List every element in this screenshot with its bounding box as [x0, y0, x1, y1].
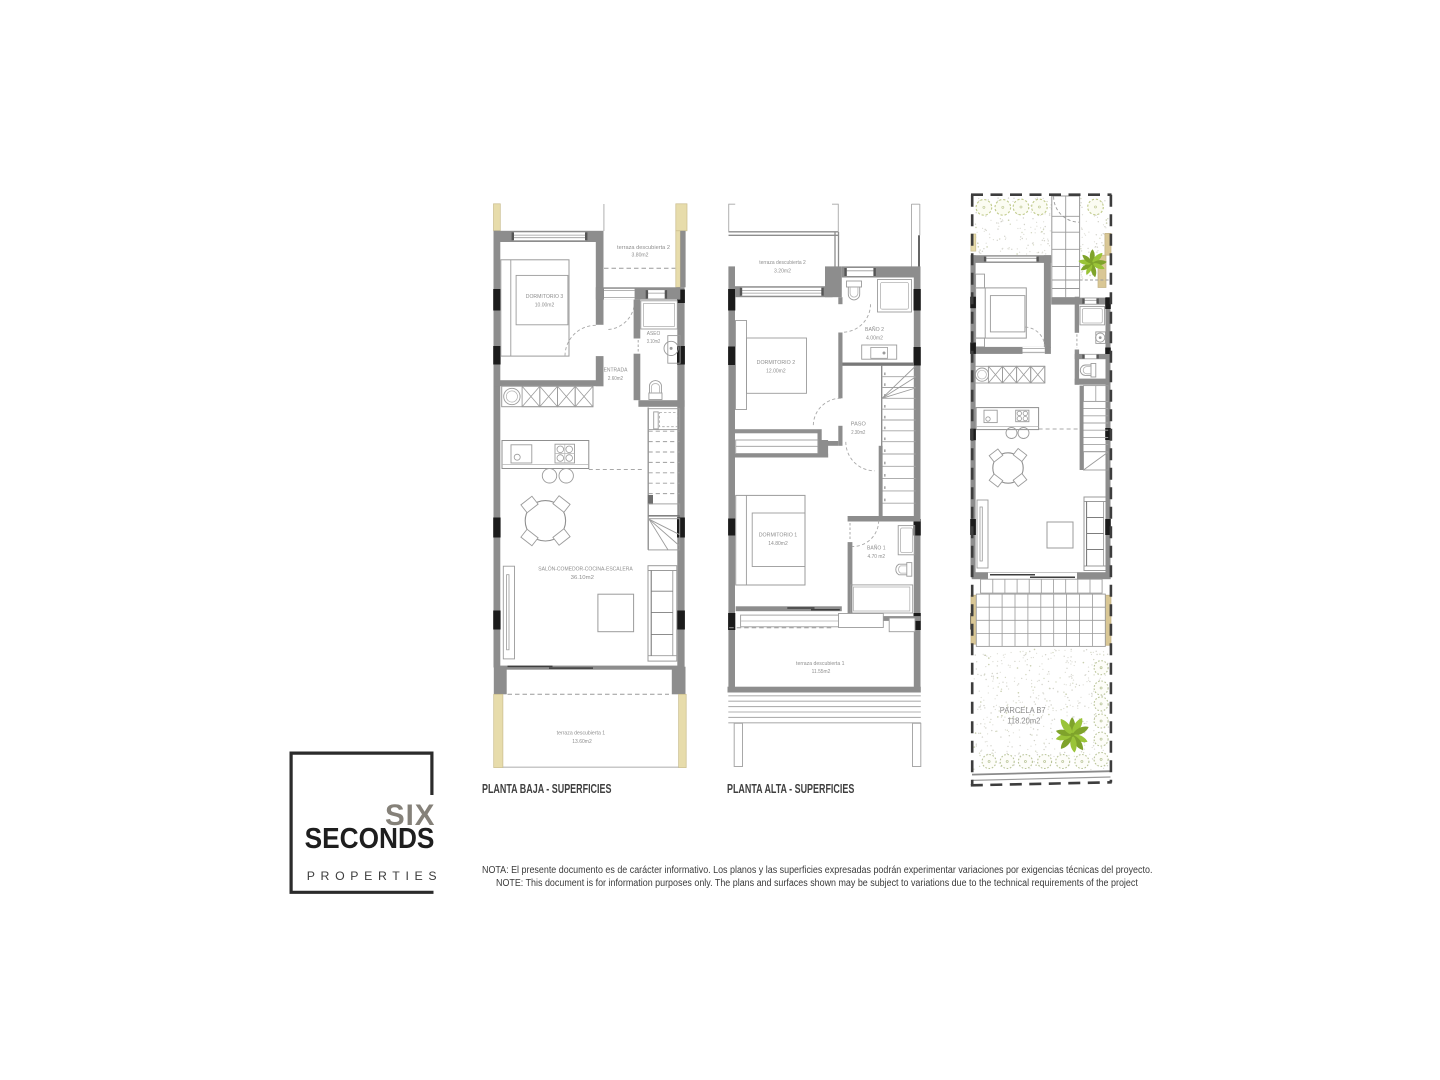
svg-text:DORMITORIO 1: DORMITORIO 1	[759, 533, 798, 539]
svg-text:14.80m2: 14.80m2	[768, 541, 788, 547]
svg-text:BAÑO 1: BAÑO 1	[867, 545, 886, 552]
svg-text:13.60m2: 13.60m2	[572, 739, 592, 745]
svg-text:12.00m2: 12.00m2	[766, 369, 786, 375]
svg-text:4.00m2: 4.00m2	[866, 336, 883, 342]
svg-text:3.20m2: 3.20m2	[774, 269, 791, 275]
svg-text:11.55m2: 11.55m2	[812, 669, 831, 675]
svg-text:2.60m2: 2.60m2	[608, 376, 623, 382]
svg-text:PASO: PASO	[851, 422, 867, 428]
svg-text:ASEO: ASEO	[647, 331, 661, 337]
svg-text:terraza descubierta 2: terraza descubierta 2	[759, 260, 806, 266]
svg-text:PARCELA B7: PARCELA B7	[1000, 706, 1046, 715]
svg-text:10.00m2: 10.00m2	[535, 303, 555, 309]
svg-text:SALÓN-COMEDOR-COCINA-ESCALERA: SALÓN-COMEDOR-COCINA-ESCALERA	[538, 566, 633, 573]
svg-text:terraza descubierta 1: terraza descubierta 1	[557, 731, 606, 737]
svg-text:ENTRADA: ENTRADA	[604, 368, 628, 374]
svg-text:terraza descubierta 2: terraza descubierta 2	[617, 245, 670, 251]
svg-text:BAÑO 2: BAÑO 2	[865, 326, 884, 333]
svg-text:3.80m2: 3.80m2	[632, 252, 649, 258]
svg-text:DORMITORIO 2: DORMITORIO 2	[757, 360, 796, 366]
svg-text:118.20m2: 118.20m2	[1007, 717, 1040, 726]
svg-text:4.70 m2: 4.70 m2	[868, 554, 886, 560]
svg-text:2.30m2: 2.30m2	[851, 430, 865, 436]
svg-text:terraza descubierta 1: terraza descubierta 1	[796, 661, 845, 667]
svg-text:36.10m2: 36.10m2	[571, 575, 594, 581]
svg-text:3.10m2: 3.10m2	[647, 339, 661, 345]
svg-text:DORMITORIO 3: DORMITORIO 3	[526, 294, 564, 300]
